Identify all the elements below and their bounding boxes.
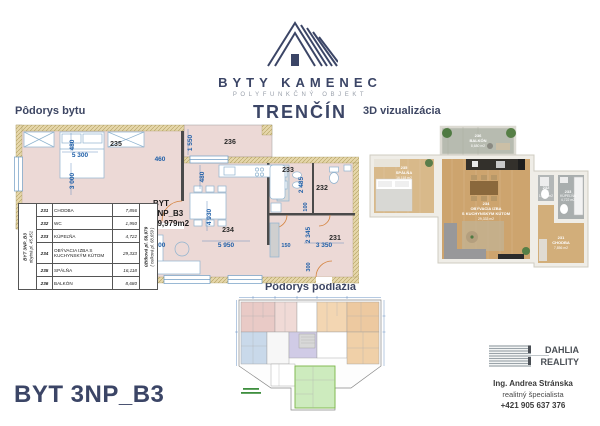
unit-label-area: 59,979m2 [153,219,190,228]
legend-row-area: 1,950 [113,217,140,230]
agent-phone: +421 905 637 376 [472,401,594,410]
room-legend-table: BYT 3NP_B3 obytná pl. 45,451 231 CHODBA … [18,203,158,290]
dim-5950: 5 950 [218,242,235,249]
page-title: BYT 3NP_B3 [14,381,164,409]
viz-chodba-name: CHODBA [552,240,570,245]
agent-company-line1: DAHLIA [545,345,579,355]
agent-company-line2: REALITY [540,357,579,367]
dim-480-living: 480 [199,171,206,182]
dim-3000: 3 000 [69,172,76,189]
3d-visualization: 236 BALKÓN 8,680 m2 235 SPÁLŇA 16,118 m2… [368,121,590,276]
viz-obyvacka-area: 29,333 m2 [478,217,494,221]
legend-left-label-cell: BYT 3NP_B3 obytná pl. 45,451 [19,204,37,290]
legend-row-name: SPÁLŇA [53,264,113,277]
legend-row-name: CHODBA [53,204,113,217]
viz-spalna-area: 16,118 m2 [396,176,412,180]
viz-balkon-name: BALKÓN [469,138,486,143]
building-legend-marks [241,388,261,394]
dim-1550: 1 550 [187,134,194,151]
viz-spalna-name: SPÁLŇA [396,170,413,175]
brand-header: BYTY KAMENEC POLYFUNKČNÝ OBJEKT TRENČÍN [0,16,600,123]
room-num-232: 232 [316,185,328,192]
flyer-page: BYTY KAMENEC POLYFUNKČNÝ OBJEKT TRENČÍN … [0,0,600,426]
visualization-heading: 3D vizualizácia [363,105,441,117]
dim-100: 100 [303,202,309,211]
agent-role: realitný špecialista [472,390,594,399]
viz-chodba-area: 7,856 m2 [554,246,568,250]
viz-wc-area: 1,950 m2 [539,194,553,198]
legend-row-name: BALKÓN [53,277,113,290]
room-num-233: 233 [282,167,294,174]
legend-row-num: 236 [37,277,53,290]
legend-living-area: obytná pl. 45,451 [28,230,33,262]
dim-150: 150 [281,243,290,249]
dim-300-hall: 300 [306,262,312,271]
dim-4930: 4 930 [206,208,213,225]
dim-3350: 3 350 [316,242,333,249]
viz-kupelna-area: 4,722 m2 [561,198,575,202]
viz-balkon-area: 8,680 m2 [471,144,485,148]
dim-5300: 5 300 [72,152,89,159]
legend-row-num: 231 [37,204,53,217]
apartment-plan-heading: Pôdorys bytu [15,105,85,117]
room-num-235: 235 [110,141,122,148]
room-num-236: 236 [224,139,236,146]
legend-total-area: ( celková pl. 68,659 ) [149,227,154,266]
legend-row-area: 7,856 [113,204,140,217]
building-floor-plan [233,296,388,418]
legend-row-area: 16,118 [113,264,140,277]
brand-name: BYTY KAMENEC [0,75,600,90]
dim-480-bedroom: 480 [69,139,76,150]
legend-row-name: WC [53,217,113,230]
legend-usable-area: úžitková pl. 59,979 [143,226,148,266]
house-logo-icon [262,16,338,68]
legend-row-area: 29,333 [113,243,140,264]
legend-row-area: 4,722 [113,230,140,243]
legend-row-num: 232 [37,217,53,230]
building-units [241,302,379,408]
dim-2345: 2 345 [305,226,312,243]
brand-subtitle: POLYFUNKČNÝ OBJEKT [0,92,600,98]
room-num-231: 231 [329,235,341,242]
viz-obyvacka-name2: S KUCHYNSKÝM KÚTOM [462,211,511,216]
dahlia-reality-logo: DAHLIA REALITY [487,343,579,369]
agent-name: Ing. Andrea Stránska [472,379,594,388]
legend-row-num: 234 [37,243,53,264]
agent-block: DAHLIA REALITY Ing. Andrea Stránska real… [472,343,594,410]
legend-unit-name: BYT 3NP_B3 [22,233,27,261]
legend-row-name: OBÝVACIA IZBA S KUCHYNSKÝM KÚTOM [53,243,113,264]
legend-row-num: 233 [37,230,53,243]
room-num-234: 234 [222,227,234,234]
dim-2485: 2 485 [298,176,305,193]
legend-row-name: KÚPEĽŇA [53,230,113,243]
legend-row-num: 235 [37,264,53,277]
legend-right-label-cell: úžitková pl. 59,979 ( celková pl. 68,659… [140,204,158,290]
legend-row-area: 8,680 [113,277,140,290]
dim-460: 460 [155,156,166,163]
